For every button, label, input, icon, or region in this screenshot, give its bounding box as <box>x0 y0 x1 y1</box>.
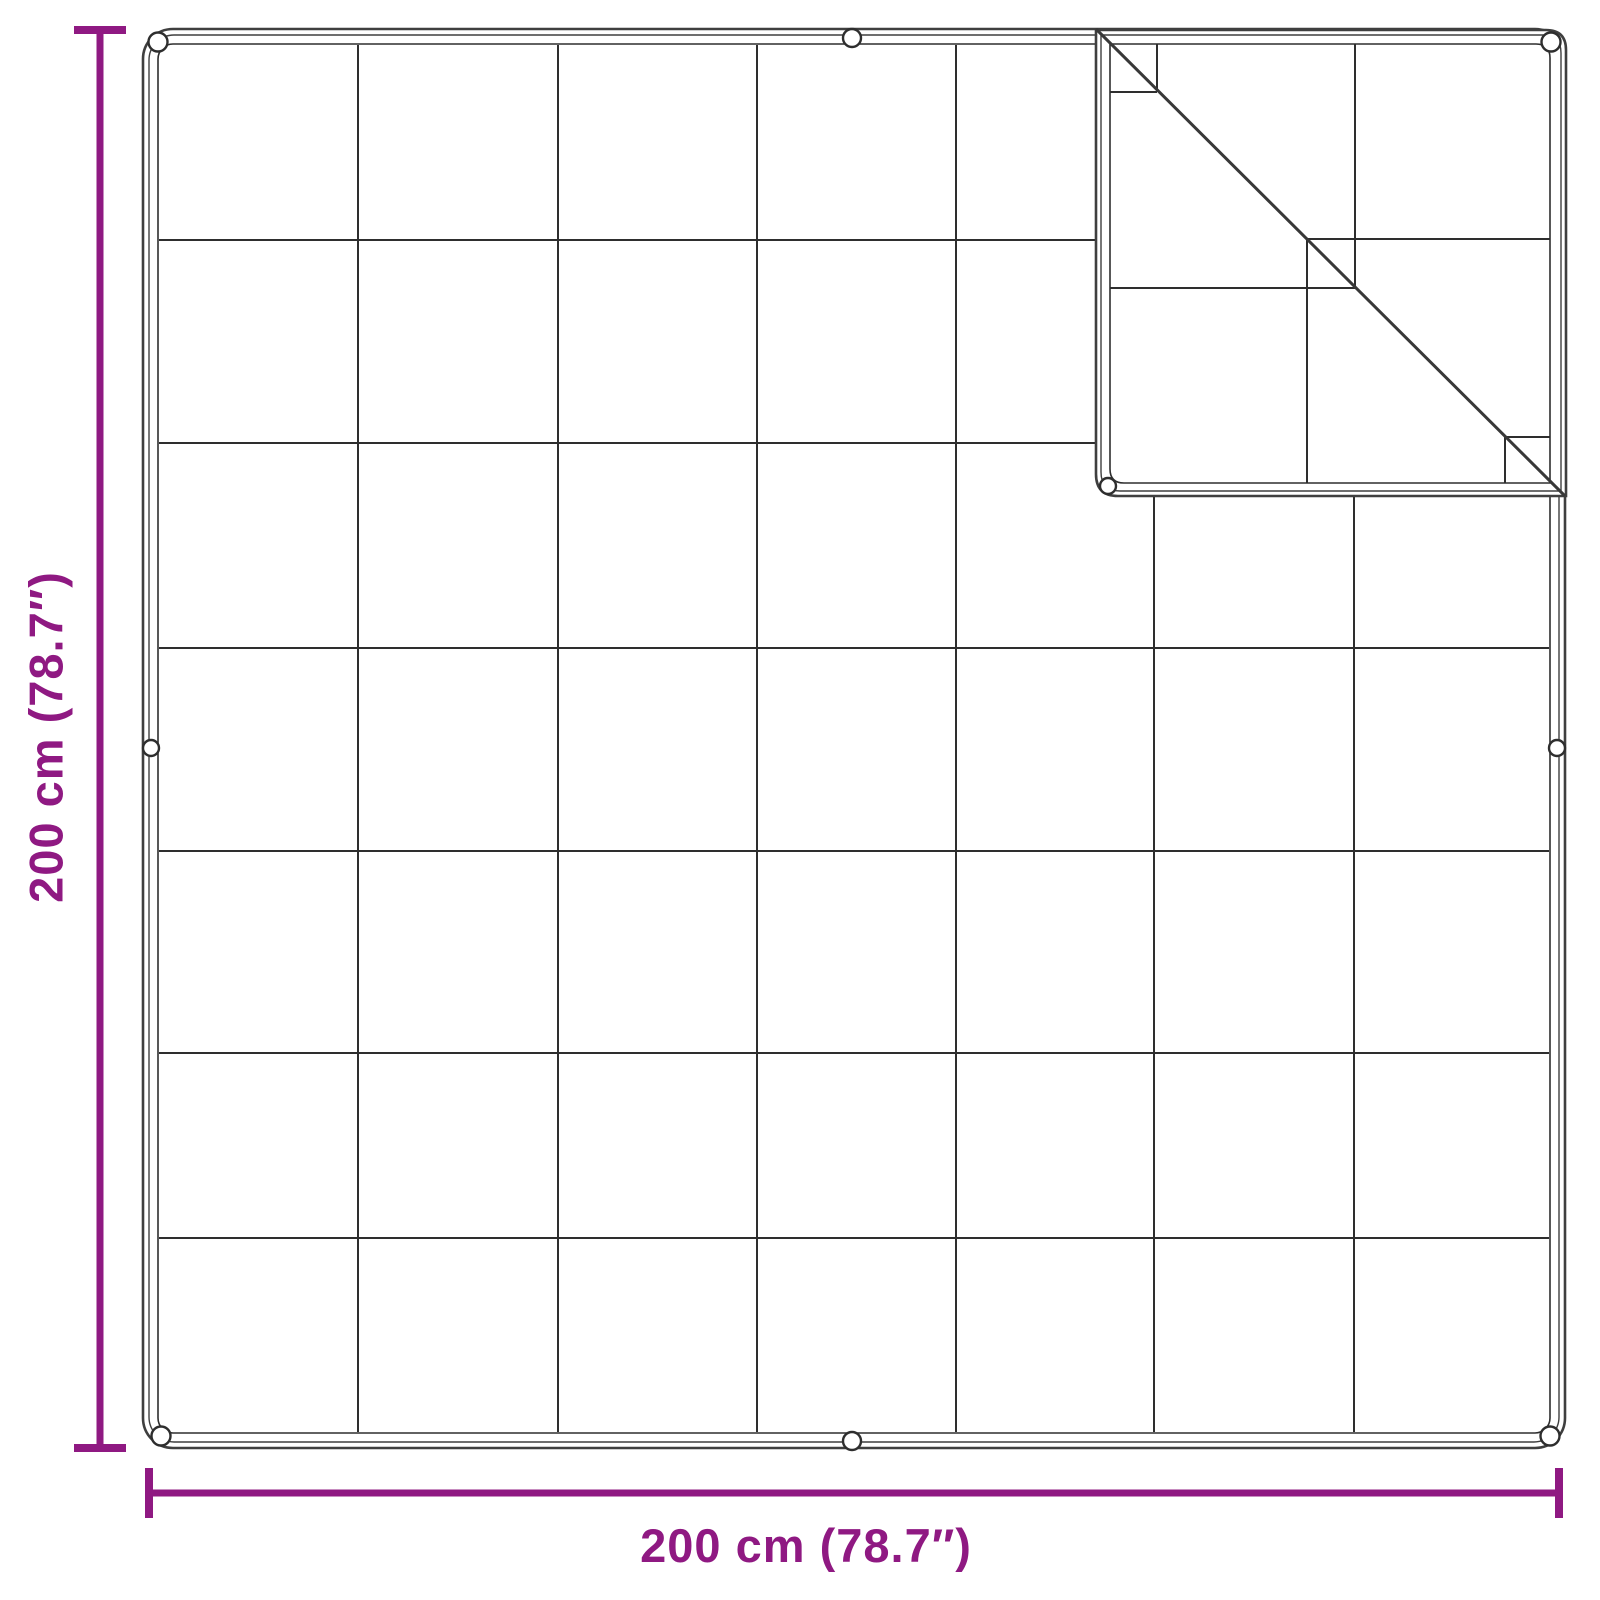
grommet-bottom-right <box>1541 1427 1560 1446</box>
grommet-bottom-left <box>152 1427 171 1446</box>
height-dimension-line <box>74 30 126 1448</box>
grommet-top-middle <box>843 29 861 47</box>
grommet-inset-top-right <box>1542 33 1561 52</box>
product-dimension-image: 200 cm (78.7″) 200 cm (78.7″) <box>0 0 1600 1600</box>
grommet-left-middle <box>143 740 159 756</box>
grommet-top-left <box>149 33 168 52</box>
height-dimension-label: 200 cm (78.7″) <box>19 571 74 903</box>
diagram-canvas <box>0 0 1600 1600</box>
grommet-right-middle <box>1549 740 1565 756</box>
grommet-bottom-middle <box>843 1432 861 1450</box>
width-dimension-label: 200 cm (78.7″) <box>640 1518 972 1573</box>
grommet-inset-bottom-left <box>1100 478 1116 494</box>
corner-detail-inset <box>1096 29 1566 496</box>
width-dimension-line <box>149 1468 1559 1518</box>
